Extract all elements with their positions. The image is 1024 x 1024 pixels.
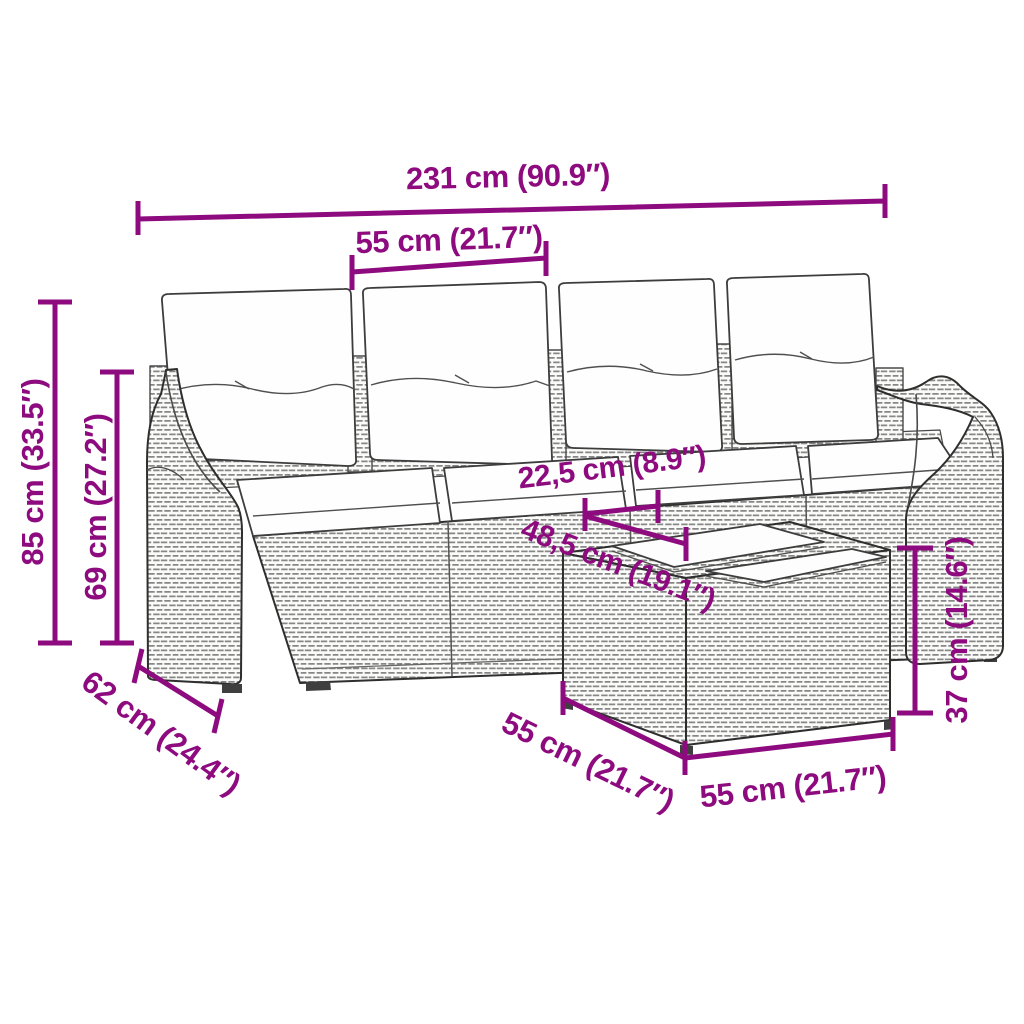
back-cushion xyxy=(559,279,722,452)
sofa-leg xyxy=(306,681,331,691)
sofa-leg xyxy=(222,684,242,693)
line-art-canvas xyxy=(0,0,1024,1024)
ottoman-right-face xyxy=(686,550,890,745)
seat-cushion xyxy=(237,468,440,536)
dim-label-overall-width: 231 cm (90.9″) xyxy=(406,157,611,198)
dim-label-back-height: 69 cm (27.2″) xyxy=(78,413,114,600)
dim-label-overall-height: 85 cm (33.5″) xyxy=(15,378,51,565)
dimension-diagram: 231 cm (90.9″) 55 cm (21.7″) 85 cm (33.5… xyxy=(0,0,1024,1024)
back-cushions xyxy=(162,274,878,466)
dim-label-module-width: 55 cm (21.7″) xyxy=(355,219,543,262)
dim-label-table-height: 37 cm (14.6″) xyxy=(939,536,975,723)
back-cushion xyxy=(727,274,878,444)
back-cushion xyxy=(363,282,552,465)
